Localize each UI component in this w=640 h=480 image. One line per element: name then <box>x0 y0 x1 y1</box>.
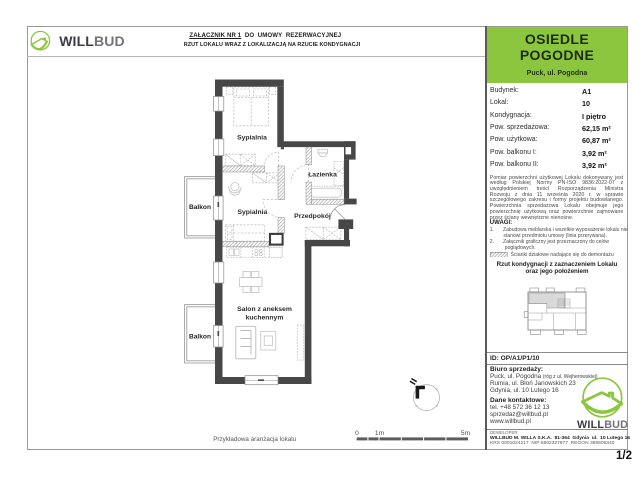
svg-text:5m: 5m <box>461 430 471 437</box>
svg-text:Sypialnia: Sypialnia <box>237 135 267 142</box>
svg-text:Balkon: Balkon <box>189 334 211 341</box>
svg-text:Przedpokój: Przedpokój <box>294 213 331 220</box>
svg-text:Przykładowa aranżacja lokalu: Przykładowa aranżacja lokalu <box>213 436 296 443</box>
svg-text:Salon z aneksem: Salon z aneksem <box>237 306 292 313</box>
svg-text:Balkon: Balkon <box>189 204 211 211</box>
svg-text:kuchennym: kuchennym <box>246 314 284 321</box>
svg-text:0: 0 <box>355 430 359 437</box>
svg-text:Łazienka: Łazienka <box>308 171 337 178</box>
svg-text:Sypialnia: Sypialnia <box>237 209 267 216</box>
svg-text:1m: 1m <box>375 430 385 437</box>
